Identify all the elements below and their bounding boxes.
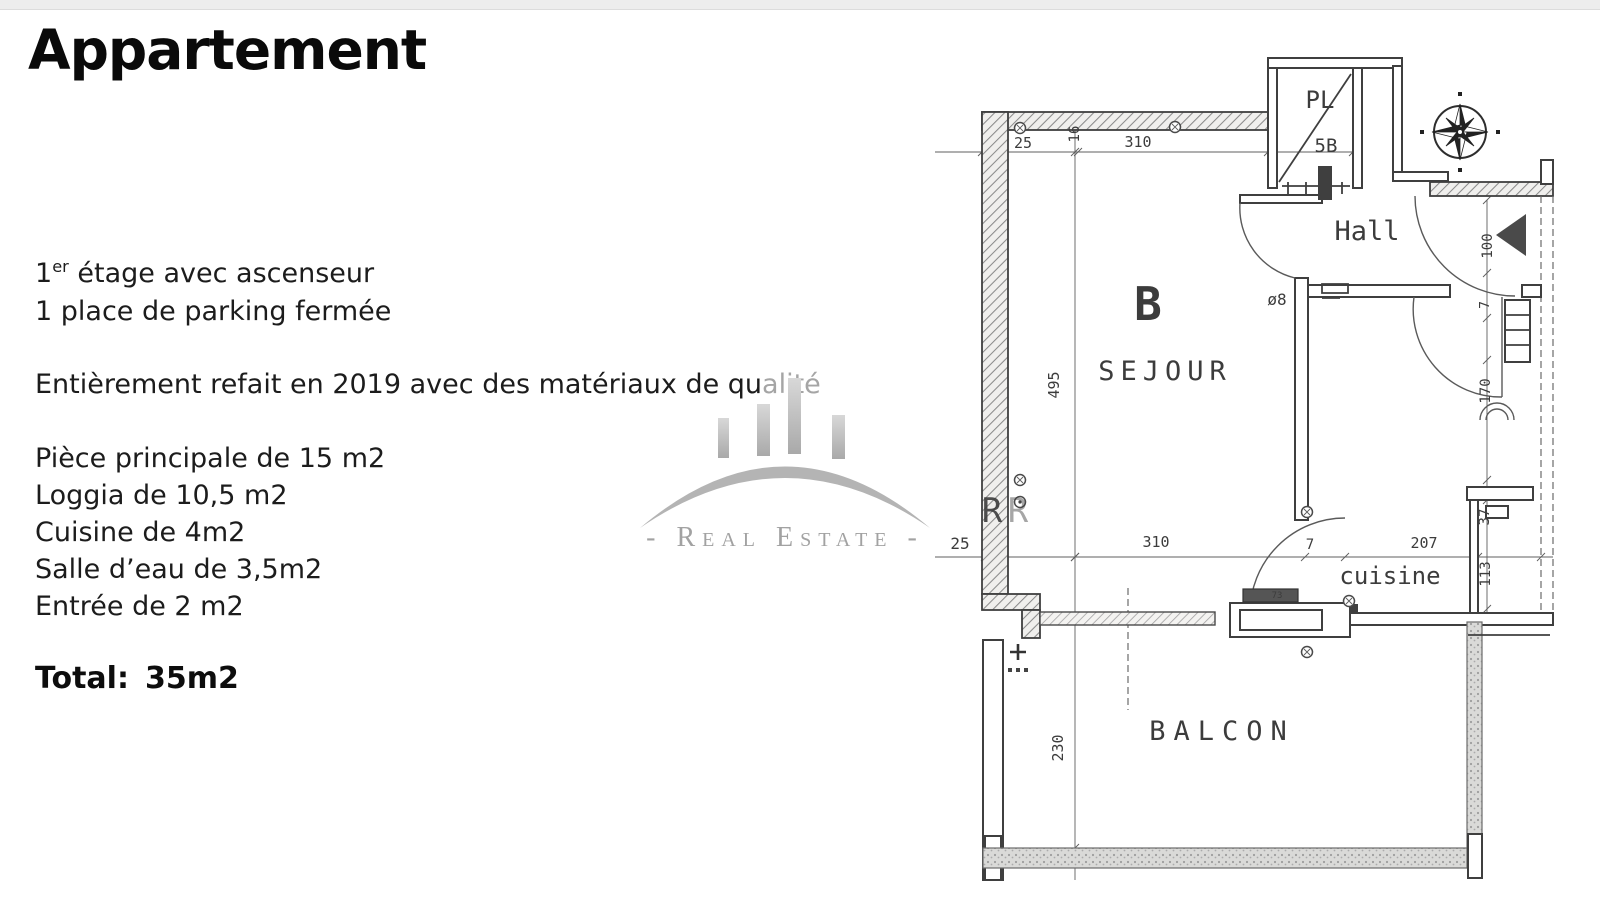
plan-label: 7 [1306, 537, 1314, 553]
room-item: Pièce principale de 15 m2 [35, 440, 385, 477]
plan-label: cuisine [1339, 562, 1440, 590]
plan-label: R [1008, 491, 1029, 531]
floor-ordinal: er [52, 257, 69, 276]
plan-label: 25 [1014, 134, 1032, 152]
total-label: Total: [35, 661, 129, 696]
outlet-icon [1344, 596, 1355, 607]
intro-text: 1er étage avec ascenseur 1 place de park… [35, 248, 391, 331]
listing-page: Appartement 1er étage avec ascenseur 1 p… [0, 0, 1600, 915]
total-line: Total:35m2 [35, 660, 239, 698]
swing-symbol [1480, 403, 1514, 420]
room-item: Entrée de 2 m2 [35, 588, 385, 625]
outlet-icon [1302, 507, 1313, 518]
plan-label: 7 [1478, 301, 1493, 309]
plan-label: 113 [1478, 561, 1494, 586]
plan-label: BALCON [1149, 716, 1295, 747]
parking-line: 1 place de parking fermée [35, 293, 391, 331]
room-item: Salle d’eau de 3,5m2 [35, 551, 385, 588]
plan-label: 100 [1480, 233, 1496, 258]
plan-label: B [1134, 277, 1162, 331]
sink-counter [1230, 589, 1350, 637]
outlet-icon [1170, 122, 1181, 133]
window-band [1040, 612, 1215, 625]
outlet-icon [1015, 123, 1026, 134]
right-boundary-wall [1541, 196, 1553, 617]
top-strip [0, 0, 1600, 10]
plan-label: Hall [1334, 216, 1399, 247]
plan-label: 310 [1142, 533, 1169, 551]
entry-door-arc [1415, 196, 1515, 296]
plan-label: SEJOUR [1098, 356, 1232, 387]
plan-label: 230 [1049, 734, 1067, 761]
plan-label: ø8 [1267, 290, 1286, 309]
floor-num: 1 [35, 258, 52, 289]
floor-line: 1er étage avec ascenseur [35, 248, 391, 293]
room-list: Pièce principale de 15 m2 Loggia de 10,5… [35, 440, 385, 625]
walls [982, 58, 1553, 880]
outlet-icon [1015, 475, 1026, 486]
outlet-icon [1302, 647, 1313, 658]
compass-rose-icon [1420, 92, 1500, 172]
plan-label: 25 [950, 534, 969, 553]
plan-label: 310 [1124, 133, 1151, 151]
tiny-marks [1008, 668, 1028, 672]
page-title: Appartement [28, 18, 426, 82]
plan-label: R [982, 491, 1003, 531]
plan-label: 207 [1410, 534, 1437, 552]
entrance-arrow-icon [1496, 214, 1526, 256]
fixtures [1008, 214, 1530, 672]
plan-label: 5B [1315, 135, 1338, 157]
plan-label: 170 [1478, 378, 1494, 403]
watermark-text: - Real Estate - [620, 522, 950, 554]
renovation-line: Entièrement refait en 2019 avec des maté… [35, 366, 821, 404]
sejour-door-arc [1240, 203, 1295, 278]
pillar [1468, 834, 1482, 878]
renovation-text: Entièrement refait en 2019 avec des maté… [35, 369, 762, 400]
floor-plan-svg: PL5BHallBSEJOURø8cuisineBALCON7325163104… [930, 48, 1570, 883]
plan-label: 37 [1477, 509, 1493, 526]
plan-label: 73 [1272, 591, 1283, 601]
floor-rest: étage avec ascenseur [69, 258, 374, 289]
renovation-text-faded: alité [762, 369, 821, 400]
radiator [1505, 300, 1530, 362]
plus-mark [1010, 644, 1026, 660]
room-item: Cuisine de 4m2 [35, 514, 385, 551]
plan-label: 495 [1045, 371, 1063, 398]
plan-label: PL [1306, 86, 1335, 114]
room-item: Loggia de 10,5 m2 [35, 477, 385, 514]
threshold-marks [1282, 182, 1350, 194]
plan-label: 16 [1067, 126, 1083, 143]
total-value: 35m2 [145, 661, 239, 696]
